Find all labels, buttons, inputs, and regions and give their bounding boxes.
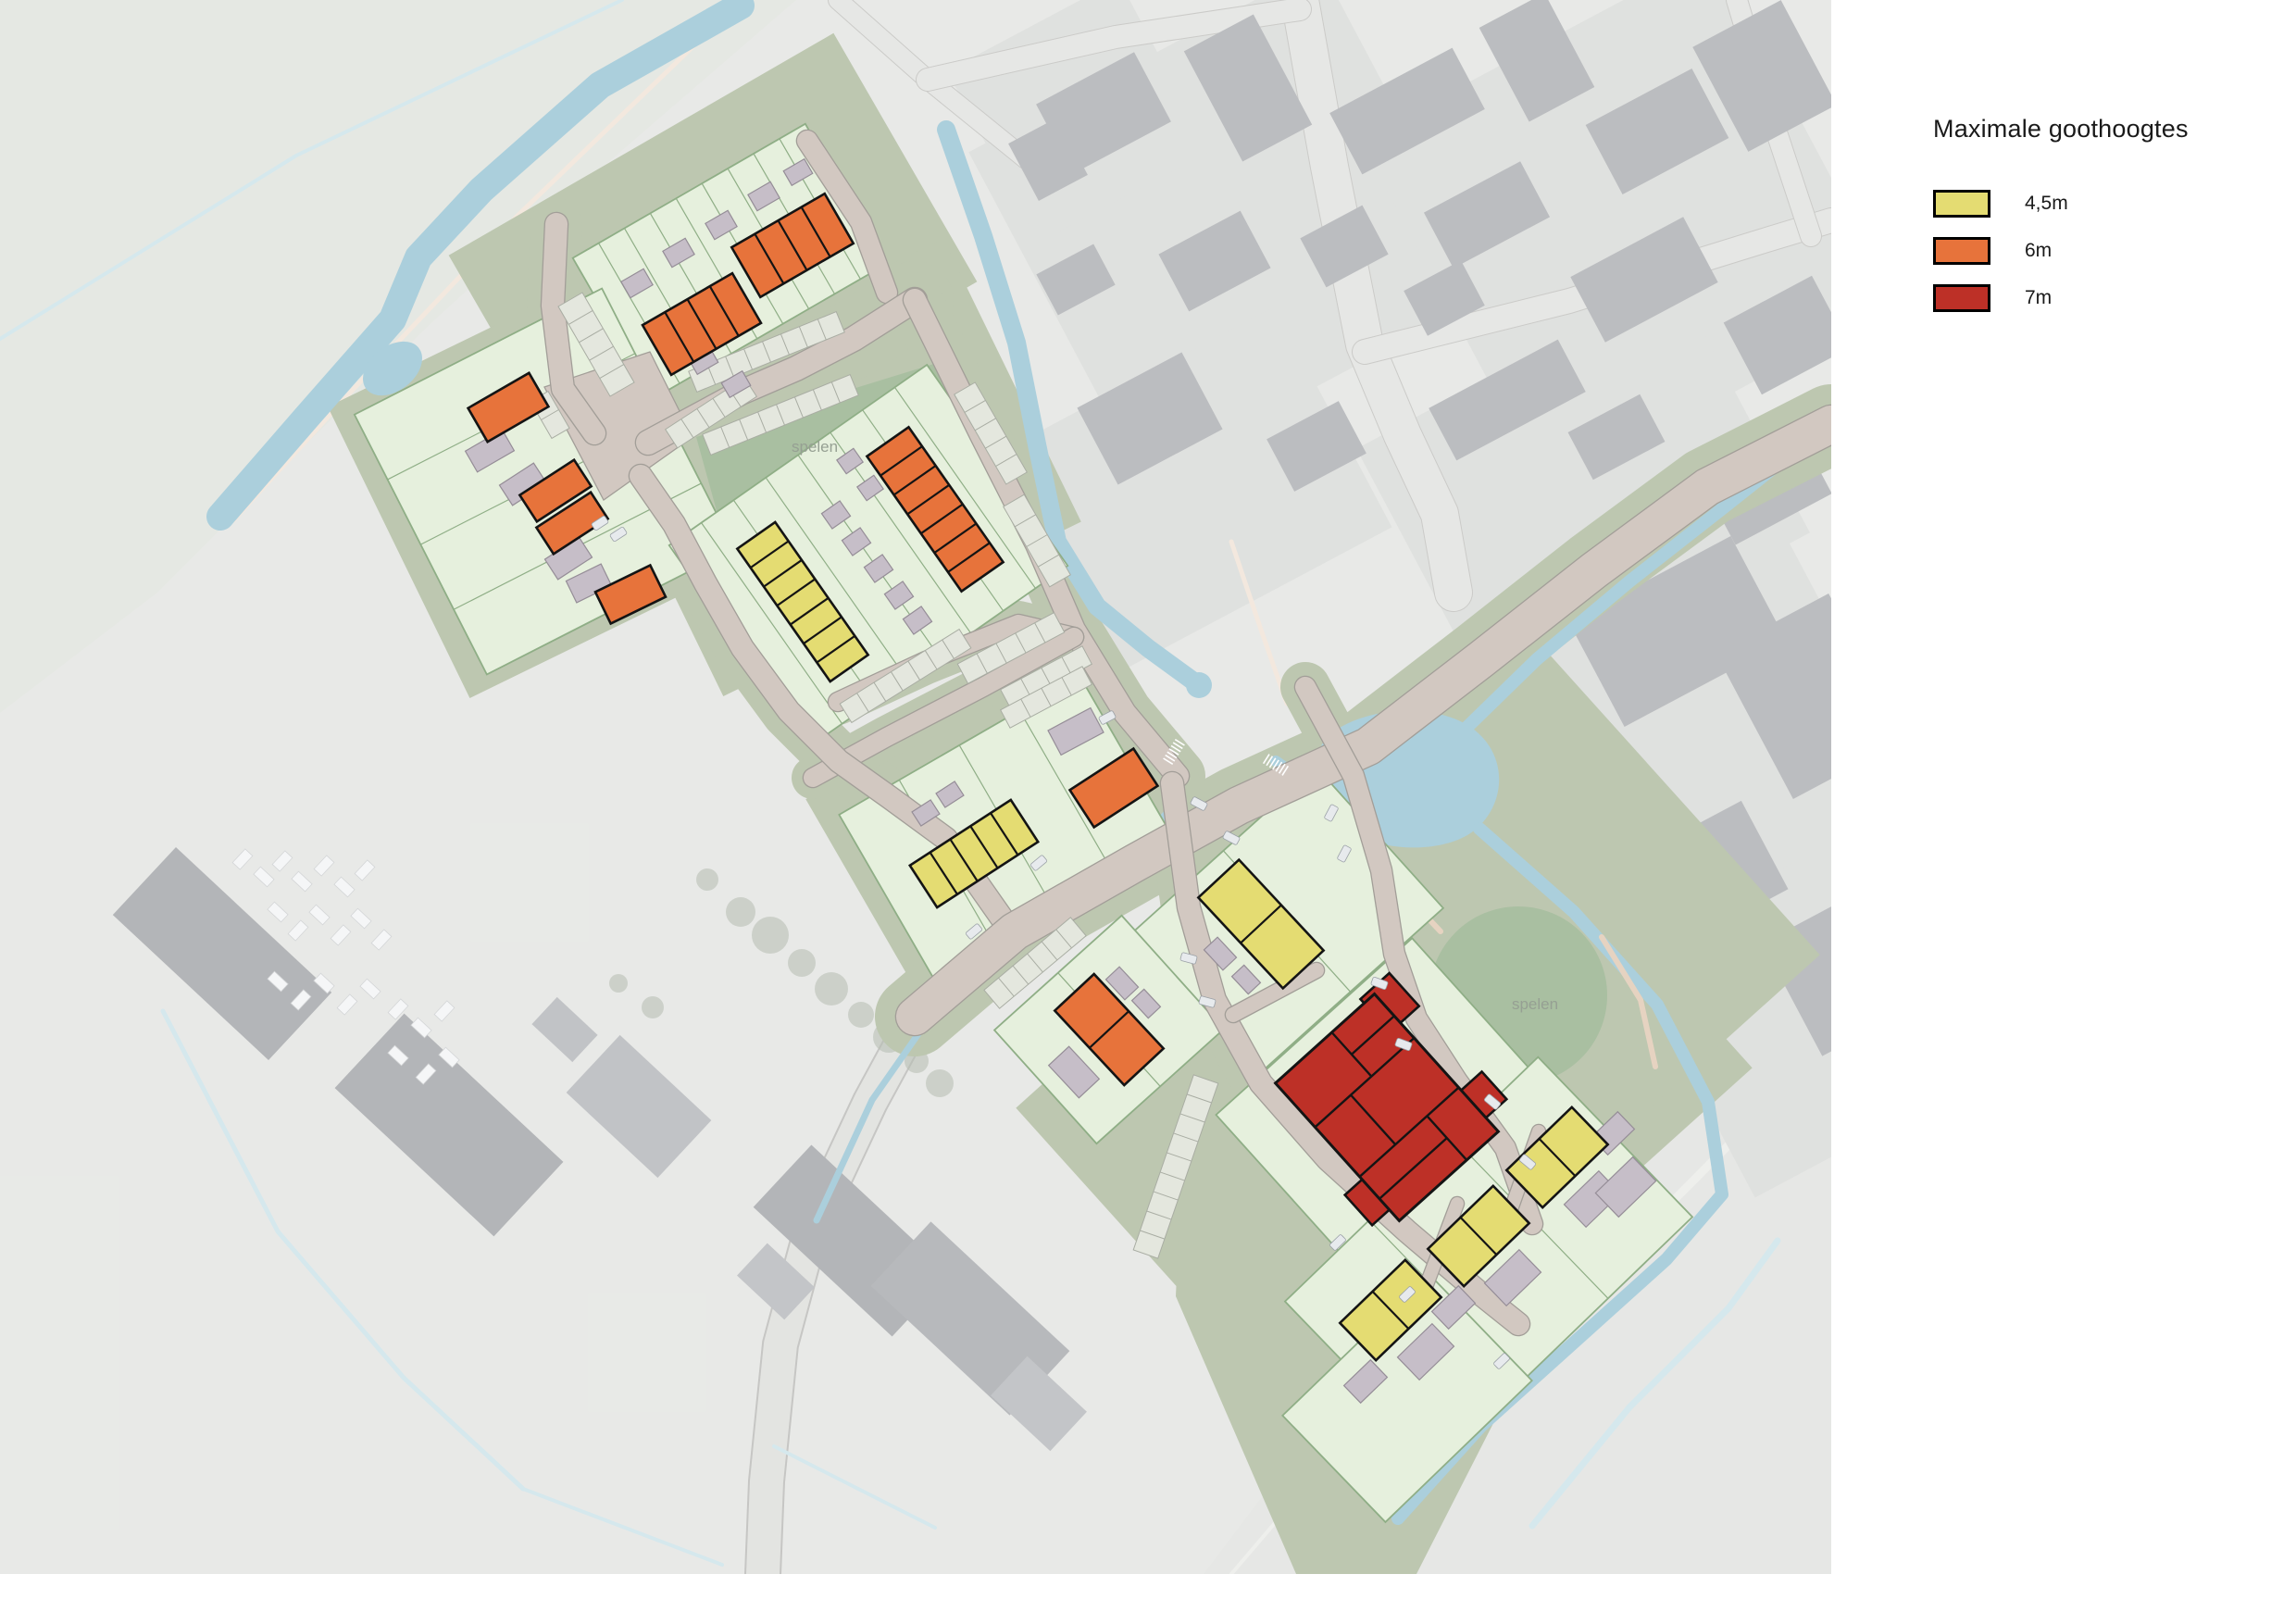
play-area-label: spelen bbox=[792, 438, 838, 456]
legend-label-7m: 7m bbox=[2025, 287, 2052, 309]
legend-swatch-45m bbox=[1933, 190, 1990, 218]
legend-panel: Maximale goothoogtes 4,5m 6m 7m bbox=[1933, 115, 2266, 331]
legend-swatch-6m bbox=[1933, 237, 1990, 265]
legend-title: Maximale goothoogtes bbox=[1933, 115, 2266, 144]
map-area: spelenspelen bbox=[0, 0, 1992, 1574]
legend-label-6m: 6m bbox=[2025, 240, 2052, 262]
legend-items: 4,5m 6m 7m bbox=[1933, 190, 2266, 312]
legend-row-6m: 6m bbox=[1933, 237, 2266, 265]
legend-row-7m: 7m bbox=[1933, 284, 2266, 312]
play-area-label: spelen bbox=[1512, 995, 1558, 1013]
page: spelenspelen Maximale goothoogtes 4,5m 6… bbox=[0, 0, 2296, 1624]
legend-swatch-7m bbox=[1933, 284, 1990, 312]
legend-label-45m: 4,5m bbox=[2025, 193, 2068, 215]
legend-row-45m: 4,5m bbox=[1933, 190, 2266, 218]
